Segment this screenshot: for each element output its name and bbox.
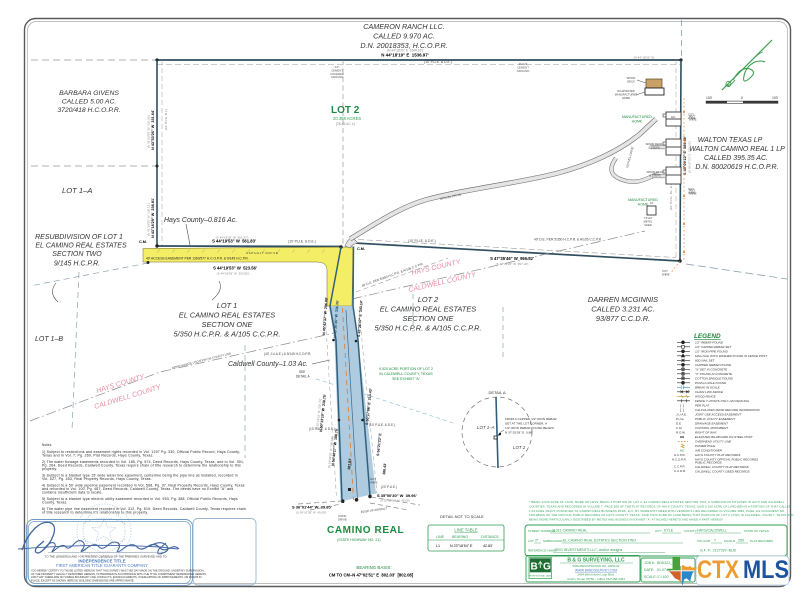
svg-text:(40' J.U.A.E.) & 9/145 H.C.O.P: (40' J.U.A.E.) & 9/145 H.C.O.P.R. (264, 352, 311, 356)
svg-text:SUBDIVISION:: SUBDIVISION: (543, 539, 563, 543)
svg-text:"X" SET IN CONCRETE: "X" SET IN CONCRETE (695, 367, 728, 371)
svg-text:CALCULATED FROM RECORD INFORMA: CALCULATED FROM RECORD INFORMATION (695, 408, 761, 412)
svg-text:SECTION ONE: SECTION ONE (202, 320, 253, 329)
svg-text:CALDWELL COUNTY PLAT RECORDS: CALDWELL COUNTY PLAT RECORDS (695, 465, 749, 469)
svg-text:SECTION ONE: SECTION ONE (403, 314, 454, 323)
svg-text:CHIPPED REBAR FOUND: CHIPPED REBAR FOUND (695, 363, 732, 367)
svg-text:40' ACCESS EASEMENT PER 1360/5: 40' ACCESS EASEMENT PER 1360/577 H.C.O.P… (146, 257, 249, 261)
svg-text:S 44°19'53" W 523.56': S 44°19'53" W 523.56' (213, 266, 257, 271)
svg-text:LOT 1–A: LOT 1–A (477, 425, 495, 430)
svg-text:EL CAMINO REAL ESTATES: EL CAMINO REAL ESTATES (179, 311, 275, 320)
svg-text:(N 44°18'26" E): (N 44°18'26" E) (634, 56, 655, 60)
svg-text:OVERHEAD UTILITY LINE: OVERHEAD UTILITY LINE (695, 439, 732, 443)
svg-text:(S 47°35'26" W 957.10'): (S 47°35'26" W 957.10') (496, 262, 529, 266)
svg-text:WIRE: WIRE (688, 116, 696, 120)
svg-text:(10' P.U.E. B.L.): (10' P.U.E. B.L.) (164, 109, 168, 130)
svg-text:WOOD DECK: WOOD DECK (647, 170, 664, 174)
svg-text:CAMINO REAL: CAMINO REAL (327, 525, 404, 536)
svg-text:WOOD: WOOD (627, 76, 636, 80)
svg-text:REFERENCE NAME:: REFERENCE NAME: (528, 549, 557, 553)
svg-text:CALLED 395.35 AC.: CALLED 395.35 AC. (704, 155, 768, 162)
svg-text:"X" FOUND IN CONCRETE: "X" FOUND IN CONCRETE (695, 372, 733, 376)
svg-text:40' D.E. PER 5/350 H.C.P.R. &: 40' D.E. PER 5/350 H.C.P.R. & A/105 C.C.… (534, 238, 602, 242)
svg-text:SRG INVESTMENTS LLC, and/or as: SRG INVESTMENTS LLC, and/or assigns (555, 548, 623, 552)
svg-text:(N 43°52'08" W 332.26'): (N 43°52'08" W 332.26') (147, 115, 151, 148)
svg-text:(S 45°07'23" E 591.26'): (S 45°07'23" E 591.26') (688, 141, 692, 173)
svg-text:HOME: HOME (632, 120, 643, 124)
svg-text:property.: property. (42, 467, 57, 471)
svg-text:C.M.: C.M. (139, 240, 147, 244)
svg-text:(N 43°18'55" W 239.12'): (N 43°18'55" W 239.12') (147, 203, 151, 236)
svg-text:R.O.W.: R.O.W. (676, 431, 686, 435)
svg-text:WALTON TEXAS LP: WALTON TEXAS LP (698, 137, 763, 144)
svg-text:WALTON CAMINO REAL 1 LP: WALTON CAMINO REAL 1 LP (689, 146, 785, 153)
svg-text:3720/418 H.C.O.P.R.: 3720/418 H.C.O.P.R. (57, 107, 120, 114)
svg-text:9/145 H.C.P.R.: 9/145 H.C.P.R. (54, 261, 100, 268)
svg-text:METAL: METAL (644, 219, 653, 223)
svg-text:2*: 2* (535, 539, 539, 543)
svg-text:DETAIL A: DETAIL A (296, 375, 311, 379)
svg-text:(10' P.U.E. & D.E.): (10' P.U.E. & D.E.) (369, 423, 395, 427)
svg-text:PUBLIC UTILITY EASEMENT: PUBLIC UTILITY EASEMENT (695, 417, 736, 421)
svg-text:MANUFACTURED: MANUFACTURED (628, 198, 658, 202)
svg-text:SHED: SHED (644, 223, 652, 227)
svg-text:Caldwell County–1.03 Ac.: Caldwell County–1.03 Ac. (228, 361, 308, 368)
svg-text:SCALE:: SCALE: (644, 575, 657, 579)
svg-text:H.C.P.R.: H.C.P.R. (674, 453, 686, 457)
svg-text:DETAIL NOT TO SCALE: DETAIL NOT TO SCALE (440, 514, 484, 519)
svg-text:C.C.D.R.: C.C.D.R. (674, 469, 686, 473)
svg-text:FIRST AMERICAN TITLE GUARANTY: FIRST AMERICAN TITLE GUARANTY COMPANY (56, 563, 148, 568)
svg-text:C.M.: C.M. (357, 247, 365, 251)
svg-text:CALLED 9.970 AC.: CALLED 9.970 AC. (373, 32, 435, 41)
svg-text:WOOD FENCE: WOOD FENCE (695, 394, 717, 398)
svg-text:5) Subject to a blanket type e: 5) Subject to a blanket type electric ut… (42, 497, 238, 501)
svg-text:& STEPS: & STEPS (649, 173, 661, 177)
svg-text:STATE OF TEXAS: STATE OF TEXAS (744, 529, 769, 533)
svg-text:SEE EXHIBIT "A": SEE EXHIBIT "A" (392, 377, 421, 381)
svg-text:CALLED 3.231 AC.: CALLED 3.231 AC. (591, 305, 654, 314)
svg-text:(S 44°18'26" W 561.67'): (S 44°18'26" W 561.67') (216, 236, 249, 240)
svg-text:DRIVE: DRIVE (338, 517, 347, 521)
svg-text:COTTON SPINDLE FOUND: COTTON SPINDLE FOUND (695, 376, 734, 380)
svg-text:HOME: HOME (622, 96, 630, 100)
svg-text:Texas and in Vol. 7, Pg. 269,: Texas and in Vol. 7, Pg. 269, Plat Recor… (42, 454, 154, 458)
svg-text:HAYS COUNTY PLAT RECORDS: HAYS COUNTY PLAT RECORDS (695, 453, 740, 457)
svg-text:RIGHT OF WAY: RIGHT OF WAY (695, 430, 718, 434)
svg-text:(S 36°01'38" W 40.09'): (S 36°01'38" W 40.09') (296, 511, 326, 515)
svg-text:( ): ( ) (680, 404, 684, 408)
svg-text:CITY:: CITY: (655, 529, 663, 533)
svg-text:(S 44°18'36" W 523.82'): (S 44°18'36" W 523.82') (217, 272, 250, 276)
svg-text:SEE: SEE (299, 370, 305, 374)
svg-text:of title research to determine: of title research to determine it's rela… (42, 511, 148, 515)
svg-text:L1: L1 (436, 544, 440, 548)
svg-text:0.520 ACRE PORTION OF LOT 2: 0.520 ACRE PORTION OF LOT 2 (379, 367, 433, 371)
svg-text:PLACE, EXCEPT AS SHOWN HEREON.: PLACE, EXCEPT AS SHOWN HEREON. BUILDING … (31, 578, 135, 582)
svg-text:ELEVATED BILLBOARD ON STEEL PO: ELEVATED BILLBOARD ON STEEL POST (695, 435, 754, 439)
svg-text:SECTION TWO: SECTION TWO (52, 251, 102, 258)
svg-text:EL CAMINO REAL ESTATES SECTION: EL CAMINO REAL ESTATES SECTION TWO (563, 539, 636, 543)
svg-text:EL CAMINO REAL ESTATES: EL CAMINO REAL ESTATES (380, 305, 476, 314)
svg-text:DECK: DECK (627, 79, 635, 83)
svg-text:5/350 H.C.P.R. & A/105 C.C.P.R: 5/350 H.C.P.R. & A/105 C.C.P.R. (374, 324, 481, 333)
svg-text:CM TO CM–N 47°02'51" E 802.03: CM TO CM–N 47°02'51" E 802.03' [802.08] (329, 573, 414, 578)
svg-text:N 43°53'26" W 331.64': N 43°53'26" W 331.64' (151, 110, 155, 150)
svg-text:BREAK IN SCALE: BREAK IN SCALE (695, 385, 721, 389)
svg-text:C.C.P.R.: C.C.P.R. (674, 465, 686, 469)
svg-text:HAYS/CALDWELL: HAYS/CALDWELL (697, 529, 727, 533)
svg-text:BEING MORE PARTICULARLY DESCRI: BEING MORE PARTICULARLY DESCRIBED BY MET… (529, 518, 723, 522)
svg-text:MANUFACTURED: MANUFACTURED (615, 92, 637, 96)
svg-text:100': 100' (706, 96, 713, 100)
svg-text:DILAPIDATED: DILAPIDATED (617, 89, 634, 93)
svg-text:N 37°33'39" E 0.88': N 37°33'39" E 0.88' (505, 431, 533, 435)
svg-text:MAG NAIL WITH WASHER FOUND IN: MAG NAIL WITH WASHER FOUND IN FENCE POST (695, 354, 768, 358)
svg-text:LEGEND: LEGEND (694, 333, 721, 340)
svg-text:RESUBDIVISION OF LOT 1: RESUBDIVISION OF LOT 1 (35, 234, 123, 241)
svg-text:(STATE HIGHWAY NO. 21): (STATE HIGHWAY NO. 21) (337, 538, 381, 542)
svg-text:93/877 C.C.D.R.: 93/877 C.C.D.R. (596, 314, 650, 323)
svg-text:[26.45 AC ±]: [26.45 AC ±] (336, 122, 355, 126)
svg-text:JOINT USE ACCESS EASEMENT: JOINT USE ACCESS EASEMENT (695, 412, 742, 416)
svg-text:G.F. #: 2127997–BUD: G.F. #: 2127997–BUD (700, 549, 737, 553)
svg-text:DISTANCE: DISTANCE (481, 535, 500, 539)
svg-text:(10' P.U.E. & D.E.): (10' P.U.E. & D.E.) (309, 427, 335, 431)
svg-text:10': 10' (650, 201, 654, 205)
svg-text:DETAIL A: DETAIL A (488, 390, 505, 395)
svg-text:(10' P.U.E. & D.E.): (10' P.U.E. & D.E.) (408, 239, 436, 243)
svg-text:1/2" CAPPED REBAR SET: 1/2" CAPPED REBAR SET (695, 345, 732, 349)
svg-text:G: G (543, 562, 551, 573)
svg-text:PG/SLD: PG/SLD (724, 539, 736, 543)
svg-text:A/C: A/C (671, 115, 675, 119)
svg-text:1/2" IRON PIPE FOUND: 1/2" IRON PIPE FOUND (695, 349, 729, 353)
svg-text:7: 7 (714, 539, 716, 543)
svg-text:CALLED 5.00 AC.: CALLED 5.00 AC. (62, 99, 117, 106)
svg-text:Notes:: Notes: (42, 443, 52, 447)
svg-text:COUNTIES, TEXAS AND RECORDED I: COUNTIES, TEXAS AND RECORDED IN VOLUME 7… (529, 504, 791, 508)
svg-text:FIRM REGISTRATION NO. 10050-00: FIRM REGISTRATION NO. 10050-00 (573, 564, 620, 568)
svg-text:BARBARA GIVENS: BARBARA GIVENS (59, 90, 119, 97)
svg-text:A S P H A L T D R I V E: A S P H A L T D R I V E (246, 251, 278, 255)
svg-text:LINE: LINE (436, 535, 445, 539)
svg-text:H.C.O.P.R.: H.C.O.P.R. (672, 458, 687, 462)
svg-text:JOB #:: JOB #: (644, 561, 655, 565)
svg-text:County, Texas.: County, Texas. (42, 501, 68, 505)
svg-text:WOOD DECK: WOOD DECK (646, 142, 663, 146)
svg-text:WIRE: WIRE (370, 480, 378, 484)
svg-text:DATE:: DATE: (644, 568, 654, 572)
svg-text:(10' P.U.E. & D.E.): (10' P.U.E. & D.E.) (288, 240, 316, 244)
svg-text:MLS: MLS (743, 556, 789, 584)
svg-text:269: 269 (738, 539, 744, 543)
svg-text:BEARING: BEARING (452, 535, 468, 539)
svg-text:Hays County–0.816 Ac.: Hays County–0.816 Ac. (164, 217, 237, 224)
svg-text:60D NAIL SET: 60D NAIL SET (695, 358, 716, 362)
svg-text:PER PLAT: PER PLAT (695, 403, 710, 407)
svg-text:PLAT RECORDS: PLAT RECORDS (750, 539, 773, 543)
svg-text:CONTROL MONUMENT: CONTROL MONUMENT (695, 426, 729, 430)
svg-text:DRAINAGE EASEMENT: DRAINAGE EASEMENT (695, 421, 729, 425)
svg-text:PUNCH HOLE FOUND: PUNCH HOLE FOUND (695, 381, 727, 385)
svg-text:GROUND: GROUND (517, 69, 529, 73)
svg-text:D.N. 80020619 H.C.O.P.R.: D.N. 80020619 H.C.O.P.R. (695, 164, 778, 171)
svg-text:& STEPS: & STEPS (648, 145, 660, 149)
svg-text:PROFESSIONAL LAND: PROFESSIONAL LAND (528, 575, 552, 578)
svg-text:* BEING 0.520 ACRE OF LAND, MO: * BEING 0.520 ACRE OF LAND, MORE OR LESS… (529, 500, 785, 504)
svg-text:POWER POLE: POWER POLE (695, 444, 716, 448)
svg-text:20.458 ACRES: 20.458 ACRES (333, 116, 361, 121)
svg-text:LOT 1–A: LOT 1–A (62, 186, 92, 195)
svg-text:0: 0 (741, 96, 743, 100)
svg-text:WIRE: WIRE (662, 273, 670, 277)
svg-text:WIRE: WIRE (688, 191, 696, 195)
svg-text:N 23°18'54" E: N 23°18'54" E (450, 544, 473, 548)
svg-text:(20' P.U.E.): (20' P.U.E.) (381, 485, 397, 489)
svg-text:FROM A CAPPED 1/2" IRON REBAR: FROM A CAPPED 1/2" IRON REBAR (505, 417, 557, 421)
svg-text:100': 100' (772, 96, 779, 100)
svg-text:7.5'x10': 7.5'x10' (643, 216, 653, 220)
svg-text:Pg. 264, Deed Records, Caldwel: Pg. 264, Deed Records, Caldwell County, … (42, 464, 241, 468)
svg-text:11311 CAMINO REAL: 11311 CAMINO REAL (552, 529, 587, 533)
svg-text:B: B (531, 562, 538, 573)
svg-text:CTX: CTX (697, 556, 739, 584)
svg-text:KYLE: KYLE (664, 529, 674, 533)
svg-text:CHAIN LINK FENCE: CHAIN LINK FENCE (695, 390, 724, 394)
svg-text:LOT 1: LOT 1 (217, 301, 238, 310)
svg-text:SET AT THE LOT CORNER, A: SET AT THE LOT CORNER, A (505, 422, 548, 426)
svg-text:(S 35°01'36" W 40.09'): (S 35°01'36" W 40.09') (380, 499, 410, 503)
svg-text:CAMERON RANCH LLC.: CAMERON RANCH LLC. (363, 22, 444, 31)
svg-text:GROUND: GROUND (331, 75, 343, 79)
svg-text:N 44°18'19" E 1536.97': N 44°18'19" E 1536.97' (381, 53, 428, 58)
svg-text:Austin, Texas 78756 – Office 5: Austin, Texas 78756 – Office 512*458-636… (567, 577, 625, 581)
svg-text:COUNTY:: COUNTY: (684, 529, 698, 533)
svg-text:LOT 2: LOT 2 (418, 295, 439, 304)
svg-text:contains insufficient data to: contains insufficient data to locate. (42, 491, 103, 495)
svg-text:13019896G OF THE OFFICIAL PUBL: 13019896G OF THE OFFICIAL PUBLIC RECORDS… (529, 513, 794, 517)
svg-text:J.U.A.E.: J.U.A.E. (676, 413, 687, 417)
svg-text:5/350 H.C.P.R. & A/105 C.C.P.R: 5/350 H.C.P.R. & A/105 C.C.P.R. (173, 330, 280, 339)
svg-text:DARREN MCGINNIS: DARREN MCGINNIS (588, 295, 658, 304)
svg-text:Vol. 527, Pg. 453, Real Proper: Vol. 527, Pg. 453, Real Property Records… (42, 477, 152, 481)
svg-text:[ ]: [ ] (680, 408, 684, 412)
svg-text:LINE TABLE: LINE TABLE (454, 528, 478, 533)
svg-text:LOT 1–B: LOT 1–B (35, 336, 63, 343)
svg-text:1.03 ACRE TRACT CONVEYED TO CA: 1.03 ACRE TRACT CONVEYED TO CAMINO REAL … (529, 509, 785, 513)
svg-text:B & G SURVEYING, LLC: B & G SURVEYING, LLC (567, 558, 625, 564)
svg-text:IN CALDWELL COUNTY, TEXAS: IN CALDWELL COUNTY, TEXAS (379, 372, 433, 376)
svg-text:1/2" IRON REBAR FOUND BEARS:: 1/2" IRON REBAR FOUND BEARS: (505, 426, 555, 430)
svg-text:C.M.: C.M. (676, 426, 682, 430)
svg-text:S 45°09'12" E 589.08': S 45°09'12" E 589.08' (683, 136, 687, 175)
svg-text:1/2" REBAR FOUND: 1/2" REBAR FOUND (695, 340, 724, 344)
svg-text:CALDWELL COUNTY DEED RECORDS: CALDWELL COUNTY DEED RECORDS (695, 469, 750, 473)
svg-text:BEARING BASIS:: BEARING BASIS: (356, 565, 391, 570)
svg-text:S 35°00'30" W 39.96': S 35°00'30" W 39.96' (377, 493, 417, 498)
svg-text:D.E.: D.E. (676, 422, 682, 426)
svg-text:(10' P.U.E. & D.E.): (10' P.U.E. & D.E.) (424, 60, 452, 64)
svg-text:AIR CONDITIONER: AIR CONDITIONER (694, 448, 723, 452)
svg-text:MANUFACTURED: MANUFACTURED (622, 115, 652, 119)
svg-text:P.U.E.: P.U.E. (676, 417, 684, 421)
svg-text:FENCE T–POSTS ONLY–NO FENCING: FENCE T–POSTS ONLY–NO FENCING (695, 399, 750, 403)
svg-text:N 43°18'29" W 238.81': N 43°18'29" W 238.81' (151, 198, 155, 238)
svg-text:EL CAMINO REAL ESTATES: EL CAMINO REAL ESTATES (35, 243, 127, 250)
svg-text:42.83': 42.83' (483, 544, 493, 548)
svg-text:VOL/CAB: VOL/CAB (697, 539, 710, 543)
svg-text:LOT: LOT (528, 539, 534, 543)
svg-text:LOT 2: LOT 2 (331, 105, 360, 116)
svg-text:LOT 2: LOT 2 (513, 445, 526, 450)
svg-text:1"=100': 1"=100' (657, 575, 669, 579)
